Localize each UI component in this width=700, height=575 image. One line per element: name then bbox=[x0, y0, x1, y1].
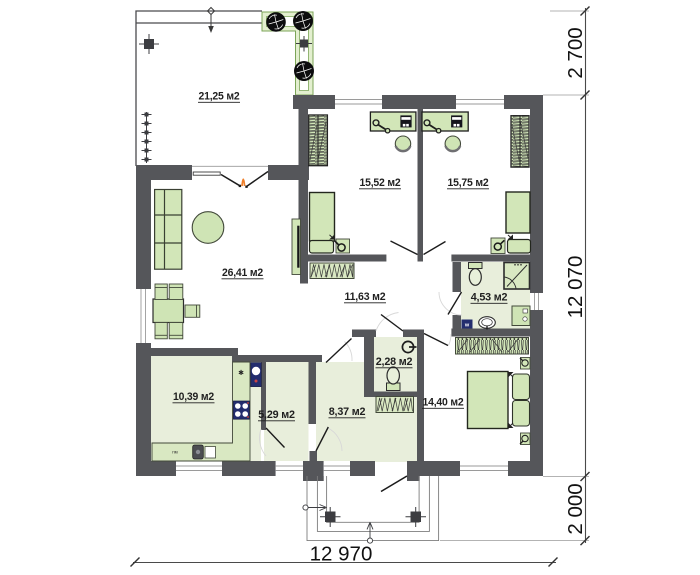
svg-text:4,53 м2: 4,53 м2 bbox=[471, 292, 508, 304]
svg-text:12 970: 12 970 bbox=[310, 543, 373, 566]
svg-text:2,28 м2: 2,28 м2 bbox=[376, 356, 413, 368]
svg-text:5,29 м2: 5,29 м2 bbox=[258, 409, 295, 421]
svg-text:10,39 м2: 10,39 м2 bbox=[173, 391, 214, 403]
svg-text:21,25 м2: 21,25 м2 bbox=[199, 91, 240, 103]
svg-text:✱: ✱ bbox=[238, 369, 244, 377]
svg-text:2 000: 2 000 bbox=[564, 483, 587, 534]
svg-text:12 070: 12 070 bbox=[564, 256, 587, 319]
svg-text:пм: пм bbox=[172, 450, 178, 455]
svg-text:14,40 м2: 14,40 м2 bbox=[423, 397, 464, 409]
svg-text:w: w bbox=[464, 323, 470, 329]
svg-text:15,75 м2: 15,75 м2 bbox=[448, 177, 489, 189]
svg-text:15,52 м2: 15,52 м2 bbox=[360, 177, 401, 189]
svg-text:2 700: 2 700 bbox=[564, 27, 587, 78]
svg-text:11,63 м2: 11,63 м2 bbox=[345, 291, 386, 303]
svg-text:8,37 м2: 8,37 м2 bbox=[329, 406, 366, 418]
svg-text:26,41 м2: 26,41 м2 bbox=[222, 267, 263, 279]
